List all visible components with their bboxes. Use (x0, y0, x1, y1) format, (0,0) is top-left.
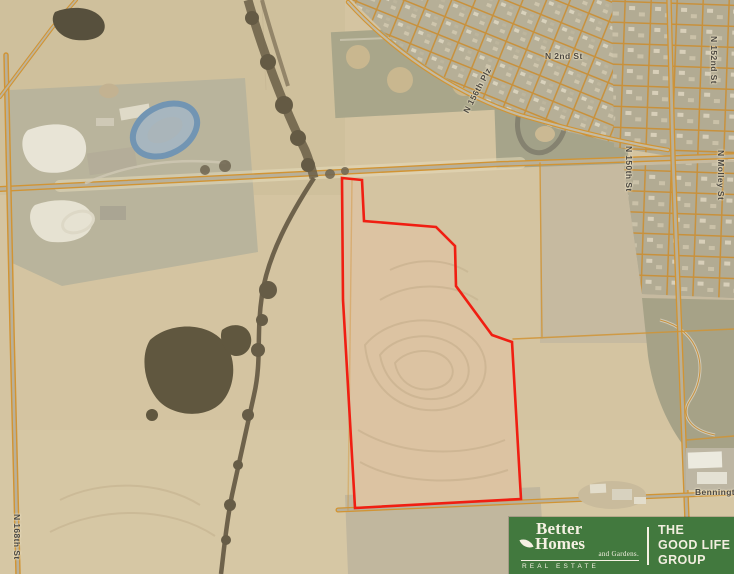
bhg-rule (521, 560, 639, 561)
bhg-word-homes: Homes (535, 536, 585, 551)
group-line-3: GROUP (658, 553, 730, 568)
aerial-map: N 156th PlzN 2nd StN 150th StN 152nd StN… (0, 0, 734, 574)
good-life-group-wordmark: THE GOOD LIFE GROUP (658, 523, 730, 567)
group-line-1: THE (658, 523, 730, 538)
farmstead (578, 481, 646, 509)
commercial-buildings (686, 448, 734, 490)
logo-divider (647, 527, 649, 565)
leaf-icon (519, 537, 533, 551)
aerial-imagery (0, 0, 734, 574)
group-line-2: GOOD LIFE (658, 538, 730, 553)
bhg-tagline: REAL ESTATE (522, 563, 639, 570)
bhg-logo-plate: Better Homes and Gardens. REAL ESTATE TH… (509, 517, 734, 574)
bhg-wordmark: Better Homes and Gardens. REAL ESTATE (521, 521, 639, 571)
